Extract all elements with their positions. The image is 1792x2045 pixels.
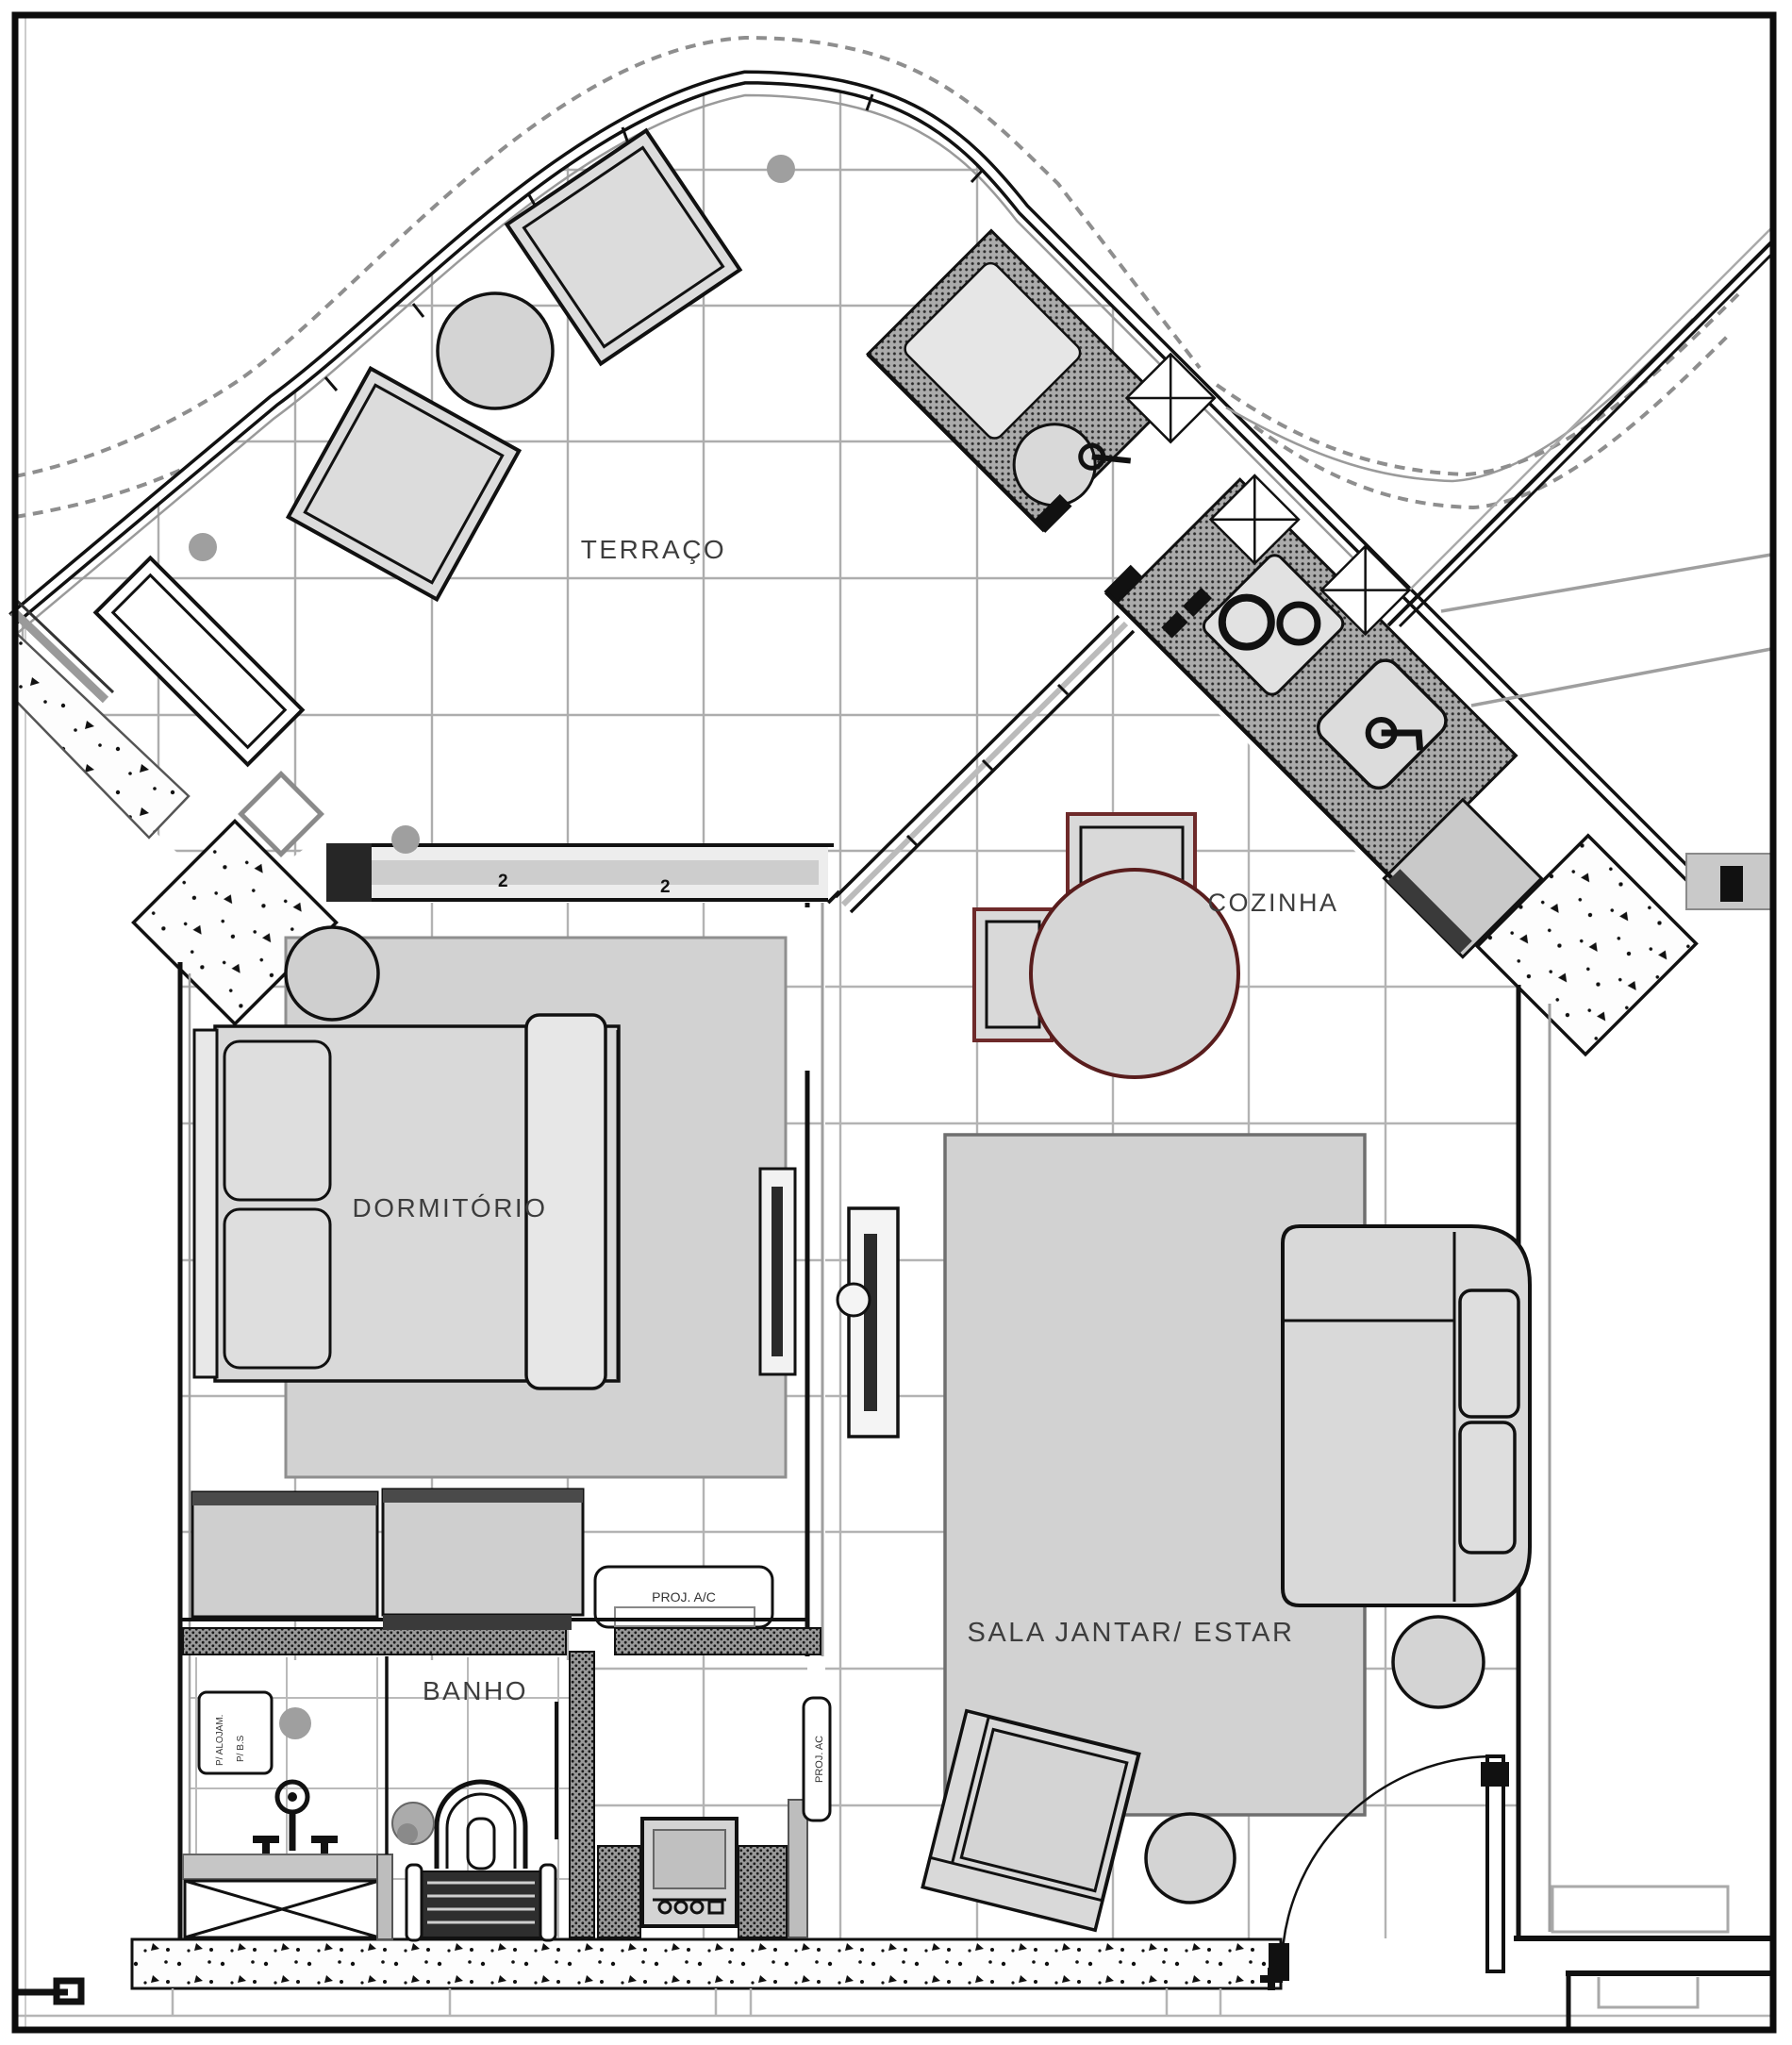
svg-text:TERRAÇO: TERRAÇO bbox=[581, 535, 726, 564]
svg-text:P/ ALOJAM.: P/ ALOJAM. bbox=[215, 1715, 225, 1766]
svg-text:2: 2 bbox=[498, 872, 508, 891]
svg-text:SALA JANTAR/ ESTAR: SALA JANTAR/ ESTAR bbox=[968, 1618, 1295, 1648]
svg-text:PROJ. A/C: PROJ. A/C bbox=[652, 1589, 716, 1604]
svg-text:2: 2 bbox=[660, 877, 671, 897]
svg-text:P/ B.S: P/ B.S bbox=[236, 1735, 246, 1762]
svg-text:COZINHA: COZINHA bbox=[1208, 889, 1339, 917]
svg-text:BANHO: BANHO bbox=[423, 1676, 528, 1705]
svg-text:DORMITÓRIO: DORMITÓRIO bbox=[353, 1193, 548, 1222]
svg-text:PROJ. AC: PROJ. AC bbox=[814, 1736, 825, 1783]
